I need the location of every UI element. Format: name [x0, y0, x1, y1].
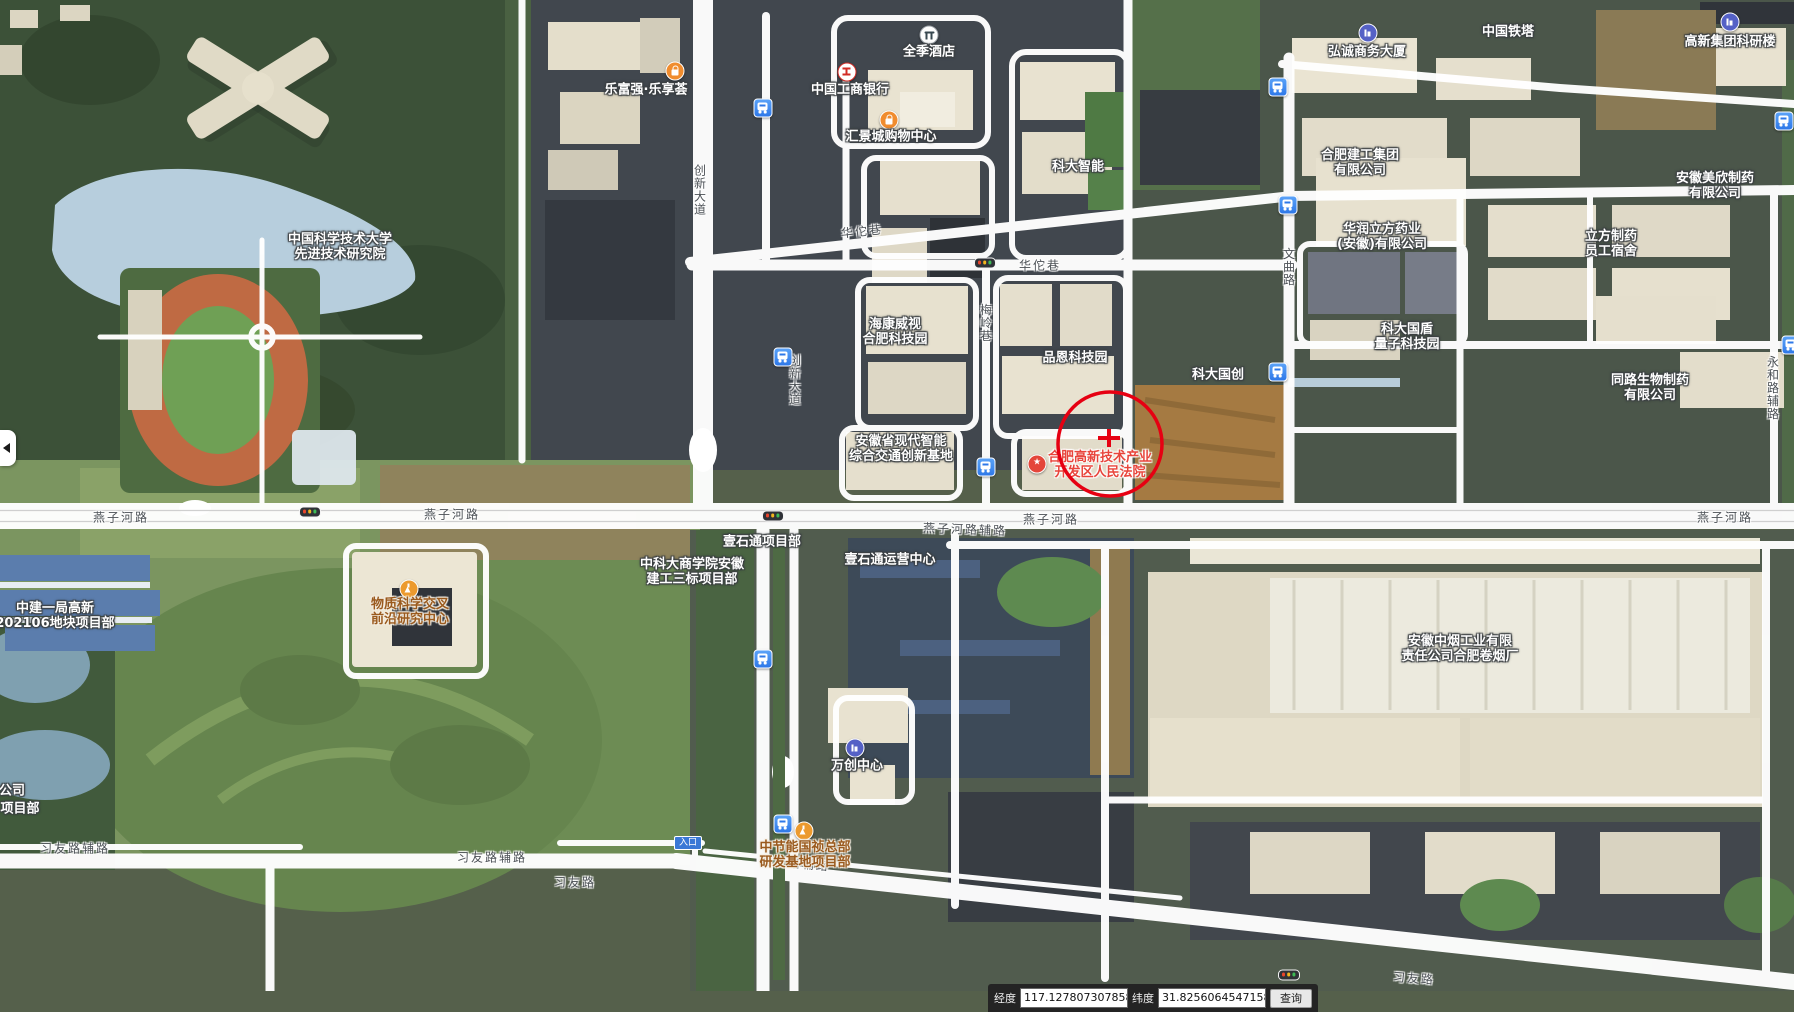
entrance-badge: 入口 [674, 836, 702, 850]
poi-icon[interactable] [1359, 24, 1378, 43]
panel-collapse-button[interactable] [0, 430, 16, 466]
poi-label[interactable]: 合肥高新技术产业开发区人民法院 [1048, 450, 1152, 480]
road-label: 梅岭巷 [978, 304, 995, 343]
road-label: 文曲路 [1281, 248, 1298, 287]
satellite-background [0, 0, 1794, 991]
bus-stop-icon[interactable] [1775, 112, 1794, 131]
poi-icon[interactable] [400, 580, 419, 599]
longitude-input[interactable]: 117.1278073078587 [1020, 988, 1128, 1008]
poi-label[interactable]: 乐富强·乐享荟 [605, 83, 688, 98]
poi-icon[interactable] [880, 111, 899, 130]
poi-label[interactable]: 壹石通项目部 [723, 535, 801, 550]
road-label: 习友路辅路 [457, 849, 527, 866]
poi-icon[interactable] [1721, 13, 1740, 32]
road-label: 习友路辅路 [40, 840, 110, 857]
poi-label[interactable]: 安徽省现代智能综合交通创新基地 [849, 434, 953, 464]
poi-label[interactable]: 中科大商学院安徽建工三标项目部 [640, 557, 744, 587]
poi-label[interactable]: 中国铁塔 [1482, 25, 1534, 40]
poi-icon[interactable] [920, 26, 939, 45]
poi-label[interactable]: 万创中心 [831, 759, 883, 774]
poi-label[interactable]: 高新集团科研楼 [1684, 35, 1775, 50]
poi-label[interactable]: 同路生物制药有限公司 [1611, 373, 1689, 403]
poi-icon[interactable] [838, 63, 857, 82]
poi-label[interactable]: 科大智能 [1052, 160, 1104, 175]
poi-label[interactable]: 华润立方药业(安徽)有限公司 [1337, 222, 1427, 252]
poi-icon[interactable] [846, 739, 865, 758]
poi-label[interactable]: 项目部 [0, 802, 39, 817]
poi-label[interactable]: 全季酒店 [903, 45, 955, 60]
poi-label[interactable]: 物质科学交叉前沿研究中心 [371, 597, 449, 627]
road-label: 习友路 [1392, 968, 1435, 988]
poi-label[interactable]: 科大国创 [1192, 368, 1244, 383]
road-label: 华佗巷 [1019, 257, 1061, 274]
poi-label[interactable]: 立方制药员工宿舍 [1585, 229, 1637, 259]
query-button[interactable]: 查询 [1270, 989, 1312, 1008]
coordinate-statusbar: 经度 117.1278073078587 纬度 31.8256064547158… [988, 984, 1318, 1012]
road-label: 创新大道 [692, 164, 709, 216]
bus-stop-icon[interactable] [774, 348, 793, 367]
poi-label[interactable]: 中建一局高新202106地块项目部 [0, 601, 115, 631]
traffic-light-icon [1278, 970, 1300, 981]
poi-label[interactable]: 弘诚商务大厦 [1328, 45, 1406, 60]
poi-label[interactable]: 安徽美欣制药有限公司 [1676, 171, 1754, 201]
poi-label[interactable]: 科大国盾量子科技园 [1374, 322, 1439, 352]
poi-label[interactable]: 品恩科技园 [1042, 351, 1107, 366]
poi-label[interactable]: 合肥建工集团有限公司 [1321, 148, 1399, 178]
road-label: 燕子河路辅路 [923, 519, 1008, 539]
poi-icon[interactable] [666, 62, 685, 81]
bus-stop-icon[interactable] [754, 650, 773, 669]
map-canvas[interactable]: 燕子河路燕子河路燕子河路燕子河路辅路燕子河路华佗巷华佗巷创新大道创新大道文曲路梅… [0, 0, 1794, 991]
road-label: 燕子河路 [1697, 509, 1753, 526]
traffic-light-icon [974, 258, 996, 269]
road-label: 习友路 [554, 874, 596, 891]
longitude-label: 经度 [994, 990, 1016, 1006]
poi-label[interactable]: 中国工商银行 [811, 83, 889, 98]
bus-stop-icon[interactable] [1269, 363, 1288, 382]
road-label: 燕子河路 [93, 509, 149, 526]
bus-stop-icon[interactable] [1782, 336, 1794, 355]
road-label: 燕子河路 [424, 506, 480, 523]
latitude-label: 纬度 [1132, 990, 1154, 1006]
poi-label[interactable]: 壹石通运营中心 [844, 553, 935, 568]
road-label: 燕子河路 [1023, 511, 1079, 528]
traffic-light-icon [299, 507, 321, 518]
bus-stop-icon[interactable] [774, 815, 793, 834]
traffic-light-icon [762, 511, 784, 522]
poi-icon[interactable] [795, 822, 814, 841]
poi-label[interactable]: 海康威视合肥科技园 [862, 317, 927, 347]
poi-label[interactable]: 公司 [0, 784, 25, 799]
bus-stop-icon[interactable] [1269, 78, 1288, 97]
bus-stop-icon[interactable] [754, 99, 773, 118]
bus-stop-icon[interactable] [977, 458, 996, 477]
poi-label[interactable]: 中国科学技术大学先进技术研究院 [288, 232, 392, 262]
poi-label[interactable]: 汇景城购物中心 [845, 130, 936, 145]
bus-stop-icon[interactable] [1279, 196, 1298, 215]
latitude-input[interactable]: 31.82560645471584 [1158, 988, 1266, 1008]
poi-label[interactable]: 安徽中烟工业有限责任公司合肥卷烟厂 [1401, 634, 1518, 664]
poi-label[interactable]: 中节能国祯总部研发基地项目部 [759, 840, 850, 870]
poi-icon[interactable] [1028, 455, 1047, 474]
chevron-left-icon [3, 443, 10, 453]
road-label: 永和路辅路 [1765, 356, 1782, 421]
